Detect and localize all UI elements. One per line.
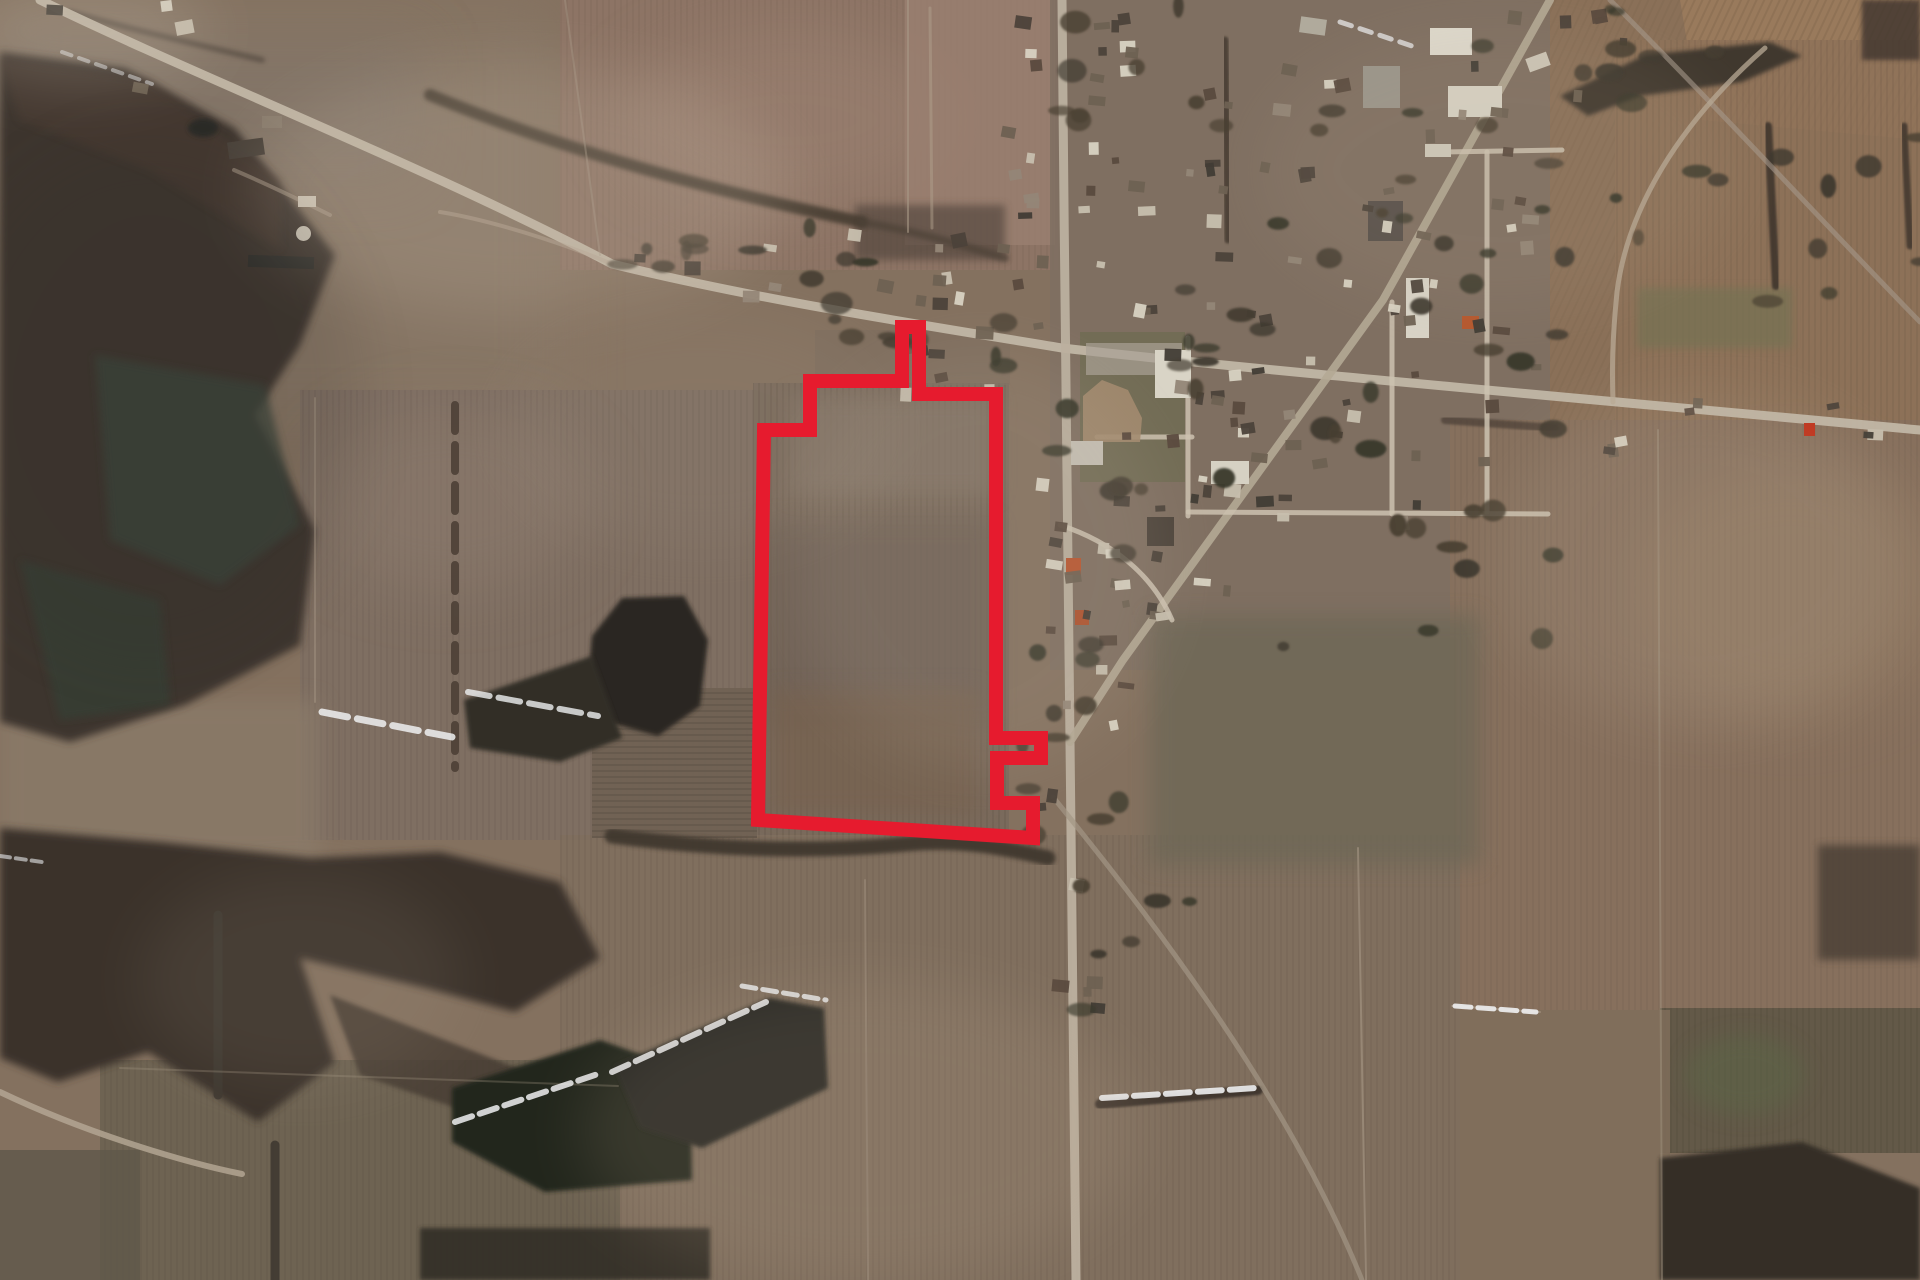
tree-canopy	[821, 292, 853, 315]
house	[1411, 371, 1419, 378]
house	[1037, 255, 1049, 268]
house	[1279, 494, 1292, 501]
tree-canopy	[1128, 59, 1144, 75]
tree-canopy	[828, 315, 841, 324]
tree-canopy	[1209, 119, 1233, 132]
tree-canopy	[1769, 149, 1794, 166]
house	[1306, 356, 1315, 365]
house	[1018, 212, 1032, 219]
house	[935, 244, 943, 252]
house	[1343, 279, 1352, 288]
tree-canopy	[1122, 936, 1140, 947]
house	[976, 326, 994, 340]
tree-canopy	[799, 270, 823, 287]
house	[1194, 578, 1212, 587]
house	[1863, 431, 1873, 438]
house	[1025, 49, 1037, 58]
tree-canopy	[1167, 359, 1193, 371]
tree-canopy	[1705, 46, 1724, 59]
house	[932, 298, 948, 311]
tree-canopy	[852, 258, 878, 266]
tree-canopy	[1188, 96, 1204, 110]
tree-canopy	[1474, 344, 1504, 356]
tree-canopy	[1213, 468, 1235, 488]
house	[1083, 987, 1091, 997]
tree-canopy	[1193, 343, 1220, 352]
house	[1203, 485, 1212, 498]
house	[1211, 395, 1224, 406]
tree-canopy	[1249, 322, 1275, 336]
house	[1111, 20, 1119, 32]
house	[933, 275, 947, 287]
house	[1012, 278, 1024, 290]
house	[1086, 186, 1095, 196]
house	[1198, 475, 1207, 482]
tree-canopy	[1355, 440, 1386, 458]
tree-canopy	[1182, 897, 1197, 906]
house	[1128, 180, 1145, 192]
tree-canopy	[1144, 894, 1171, 908]
tree-canopy	[1389, 514, 1406, 537]
house	[1030, 59, 1043, 71]
tree-canopy	[990, 313, 1017, 332]
tree-canopy	[1546, 329, 1568, 340]
house	[1094, 22, 1111, 30]
house	[1207, 302, 1216, 310]
house	[1051, 979, 1069, 993]
tree-canopy	[1821, 174, 1837, 198]
house	[1347, 410, 1362, 423]
house	[1026, 152, 1035, 163]
house	[1089, 142, 1099, 155]
house	[1230, 417, 1238, 427]
tree-canopy	[1090, 950, 1106, 959]
tree-canopy	[1437, 541, 1468, 553]
house	[915, 295, 926, 307]
tree-canopy	[1227, 308, 1255, 322]
house	[1138, 206, 1156, 216]
house	[1186, 169, 1194, 177]
house	[1228, 369, 1241, 381]
tree-canopy	[1752, 295, 1783, 308]
house	[1112, 157, 1120, 164]
tree-canopy	[1183, 334, 1195, 350]
house	[1096, 261, 1105, 269]
house	[1167, 434, 1180, 448]
house	[1485, 399, 1499, 413]
house	[1283, 409, 1295, 420]
tree-canopy	[1277, 642, 1289, 651]
house	[1078, 206, 1090, 214]
house	[997, 244, 1010, 254]
house	[1174, 380, 1190, 395]
house	[1008, 169, 1022, 181]
tree-canopy	[1821, 287, 1838, 299]
house	[1472, 318, 1485, 333]
house	[1098, 47, 1107, 56]
house	[1560, 15, 1572, 28]
tree-canopy	[1015, 783, 1040, 794]
house	[1478, 457, 1490, 466]
house	[1240, 422, 1255, 435]
tree-canopy	[803, 218, 815, 237]
house	[1507, 10, 1522, 25]
tree-canopy	[1363, 382, 1379, 403]
satellite-map	[0, 0, 1920, 1280]
house	[1223, 585, 1231, 597]
tree-canopy	[1060, 11, 1091, 34]
house	[1203, 87, 1217, 101]
tree-canopy	[839, 329, 864, 345]
tree-canopy	[1808, 239, 1827, 259]
tree-canopy	[1057, 59, 1086, 83]
house	[1285, 440, 1301, 450]
building	[262, 116, 282, 128]
tree-canopy	[1329, 424, 1343, 443]
tree-canopy	[1192, 357, 1219, 366]
house	[950, 232, 968, 249]
tree-canopy	[1073, 879, 1090, 894]
house	[1224, 101, 1233, 109]
house	[1218, 185, 1228, 194]
tree-canopy	[1066, 109, 1092, 131]
house	[1411, 450, 1420, 461]
house	[1232, 401, 1245, 414]
house	[1215, 252, 1233, 262]
tree-canopy	[1067, 1003, 1096, 1017]
house	[1117, 12, 1131, 25]
tree-canopy	[1454, 559, 1480, 578]
house	[1413, 500, 1421, 510]
house	[1088, 95, 1106, 106]
house	[1256, 496, 1274, 508]
tree-canopy	[1507, 352, 1535, 370]
tree-canopy	[1855, 155, 1881, 177]
tree-canopy	[1087, 813, 1114, 825]
house	[847, 228, 862, 242]
house	[1251, 452, 1268, 463]
tree-canopy	[1405, 518, 1427, 539]
house	[743, 291, 760, 303]
house	[1403, 315, 1416, 326]
tree-canopy	[1109, 791, 1129, 813]
house	[1046, 788, 1058, 803]
tree-canopy	[1608, 7, 1625, 16]
tree-canopy	[1188, 379, 1204, 400]
house	[1125, 47, 1139, 59]
aerial-map-view	[0, 0, 1920, 1280]
house	[1014, 15, 1032, 30]
house	[1190, 494, 1199, 504]
tree-canopy	[1418, 625, 1439, 637]
tree-canopy	[1175, 284, 1196, 295]
tree-canopy	[836, 252, 856, 267]
house	[1206, 214, 1221, 228]
house	[1277, 513, 1289, 522]
